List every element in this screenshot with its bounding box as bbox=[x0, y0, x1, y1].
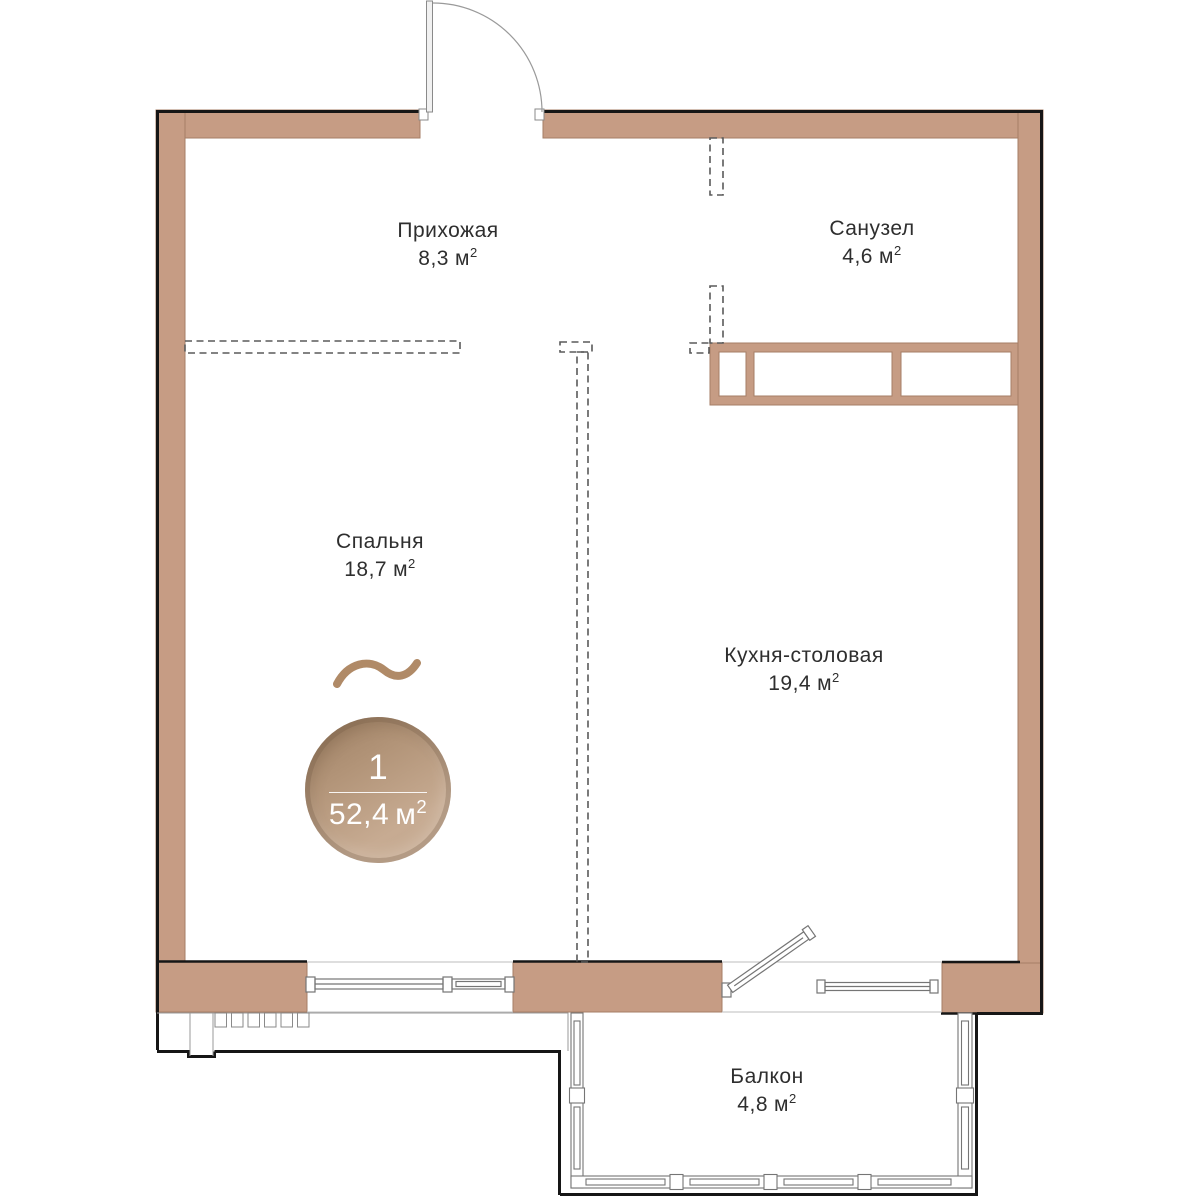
balcony-door-and-window bbox=[722, 926, 942, 1012]
room-label-kitchen: Кухня-столовая 19,4м2 bbox=[724, 644, 883, 696]
wall-bottom-bedroom bbox=[156, 962, 307, 1012]
balcony-door-leaf bbox=[726, 926, 815, 994]
room-name: Прихожая bbox=[397, 219, 498, 243]
window-jamb bbox=[930, 980, 938, 993]
floor-plan-page: Прихожая 8,3м2 Санузел 4,6м2 Спальня 18,… bbox=[0, 0, 1200, 1200]
wall-bottom-middle bbox=[513, 962, 722, 1012]
dashed-stub-kitchen bbox=[690, 343, 709, 353]
entrance-door-leaf bbox=[427, 1, 433, 112]
wall-right bbox=[1018, 110, 1043, 963]
dashed-wall-bedroom-kitchen bbox=[577, 352, 588, 962]
wall-top-right bbox=[543, 110, 1043, 138]
room-area: 4,8м2 bbox=[730, 1093, 803, 1117]
rooms-count: 1 bbox=[368, 750, 387, 785]
room-label-bedroom: Спальня 18,7м2 bbox=[336, 530, 424, 582]
room-area: 19,4м2 bbox=[724, 672, 883, 696]
dashed-tee-top bbox=[560, 342, 592, 352]
room-label-balcony: Балкон 4,8м2 bbox=[730, 1065, 803, 1117]
outer-contour bbox=[157, 112, 1042, 1196]
dashed-wall-hallway-bedroom bbox=[185, 341, 460, 353]
room-name: Кухня-столовая bbox=[724, 644, 883, 668]
room-label-hallway: Прихожая 8,3м2 bbox=[397, 219, 498, 271]
room-area: 18,7м2 bbox=[336, 558, 424, 582]
duct-wall bbox=[710, 343, 1018, 405]
dashed-wall-bathroom-bottom bbox=[710, 286, 723, 343]
window-jamb bbox=[306, 977, 315, 992]
door-jamb-right bbox=[535, 109, 544, 120]
room-label-bathroom: Санузел 4,6м2 bbox=[829, 217, 914, 269]
total-area: 52,4м2 bbox=[329, 800, 427, 830]
room-name: Балкон bbox=[730, 1065, 803, 1089]
door-swing-arc bbox=[433, 3, 542, 112]
room-area: 8,3м2 bbox=[397, 247, 498, 271]
badge-divider bbox=[329, 792, 427, 793]
wall-top-left bbox=[156, 110, 420, 138]
bedroom-window bbox=[306, 962, 514, 1012]
window-jamb bbox=[443, 977, 452, 992]
entrance-door bbox=[419, 1, 544, 120]
wall-left bbox=[156, 110, 185, 1012]
room-name: Спальня bbox=[336, 530, 424, 554]
room-name: Санузел bbox=[829, 217, 914, 241]
dashed-wall-bathroom-top bbox=[710, 138, 723, 195]
total-area-badge: 1 52,4м2 bbox=[305, 717, 451, 863]
wall-bottom-right bbox=[942, 963, 1043, 1013]
floor-plan-drawing bbox=[0, 0, 1200, 1200]
room-area: 4,6м2 bbox=[829, 245, 914, 269]
window-jamb bbox=[817, 980, 825, 993]
window-jamb bbox=[505, 977, 514, 992]
wave-icon bbox=[337, 663, 417, 684]
radiator bbox=[215, 1013, 309, 1027]
